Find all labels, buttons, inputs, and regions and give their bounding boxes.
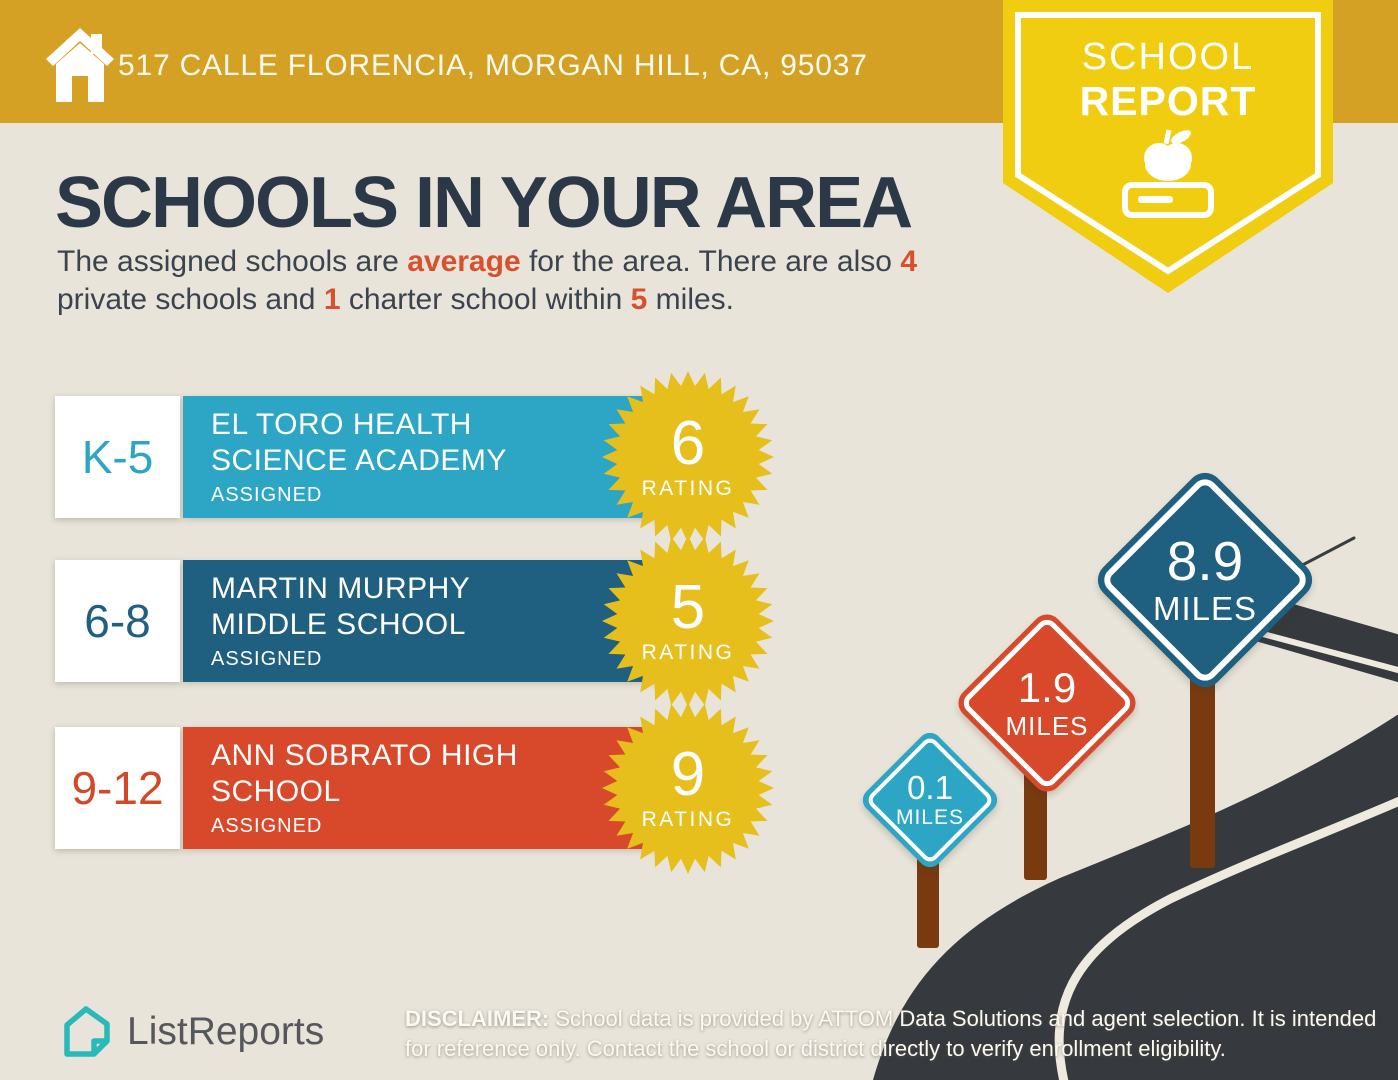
ribbon-title-school: SCHOOL [1003, 36, 1333, 79]
ribbon-title-report: REPORT [1003, 78, 1333, 125]
intro-accent-private-count: 4 [900, 245, 917, 278]
rating-label: RATING [642, 641, 735, 665]
intro-text: charter school within [341, 283, 631, 316]
assigned-label: ASSIGNED [211, 815, 663, 838]
disclaimer-line2: for reference only. Contact the school o… [405, 1036, 1226, 1061]
rating-value: 9 [671, 745, 705, 805]
intro-accent-average: average [407, 245, 520, 278]
school-name-line1: ANN SOBRATO HIGH [211, 738, 663, 774]
listreports-house-icon [60, 1004, 114, 1060]
rating-value: 6 [671, 414, 705, 474]
school-name-line2: MIDDLE SCHOOL [211, 607, 663, 643]
distance-unit: MILES [1005, 711, 1088, 742]
school-row-middle: 6-8 MARTIN MURPHY MIDDLE SCHOOL ASSIGNED… [55, 560, 795, 682]
rating-label: RATING [642, 477, 735, 501]
intro-text: private schools and [57, 283, 324, 316]
grade-range-badge: 9-12 [55, 727, 180, 849]
intro-paragraph: The assigned schools are average for the… [57, 243, 917, 319]
school-bar: ANN SOBRATO HIGH SCHOOL ASSIGNED [183, 727, 663, 849]
property-address: 517 CALLE FLORENCIA, MORGAN HILL, CA, 95… [118, 49, 868, 83]
intro-text: for the area. There are also [521, 245, 901, 278]
intro-text: The assigned schools are [57, 245, 407, 278]
home-icon [44, 26, 116, 104]
school-row-elementary: K-5 EL TORO HEALTH SCIENCE ACADEMY ASSIG… [55, 396, 795, 518]
school-row-high: 9-12 ANN SOBRATO HIGH SCHOOL ASSIGNED 9 … [55, 727, 795, 849]
page-title: SCHOOLS IN YOUR AREA [55, 162, 911, 244]
intro-accent-charter-count: 1 [324, 283, 341, 316]
school-bar: MARTIN MURPHY MIDDLE SCHOOL ASSIGNED [183, 560, 663, 682]
school-bar: EL TORO HEALTH SCIENCE ACADEMY ASSIGNED [183, 396, 663, 518]
school-name-line2: SCHOOL [211, 774, 663, 810]
grade-range: 9-12 [71, 761, 163, 815]
distance-sign-8-9-miles: 8.9 MILES [1090, 465, 1319, 694]
rating-starburst: 5 RATING [602, 535, 774, 707]
grade-range-badge: 6-8 [55, 560, 180, 682]
distance-value: 1.9 [1018, 665, 1076, 711]
school-name-line1: MARTIN MURPHY [211, 571, 663, 607]
distance-unit: MILES [1153, 590, 1257, 628]
apple-on-book-icon [1120, 126, 1216, 222]
rating-label: RATING [642, 808, 735, 832]
intro-accent-radius: 5 [631, 283, 648, 316]
rating-starburst: 6 RATING [602, 371, 774, 543]
school-report-ribbon: SCHOOL REPORT [1003, 0, 1333, 300]
grade-range: 6-8 [84, 594, 150, 648]
rating-value: 5 [671, 578, 705, 638]
disclaimer-label: DISCLAIMER: [405, 1006, 549, 1031]
assigned-label: ASSIGNED [211, 648, 663, 671]
distance-value: 0.1 [907, 770, 953, 806]
assigned-label: ASSIGNED [211, 484, 663, 507]
rating-starburst: 9 RATING [602, 702, 774, 874]
school-report-infographic: 0.1 MILES 1.9 MILES 8.9 MILES 517 CALLE … [0, 0, 1398, 1080]
distance-value: 8.9 [1167, 532, 1243, 590]
distance-unit: MILES [896, 806, 964, 830]
school-name-line2: SCIENCE ACADEMY [211, 443, 663, 479]
disclaimer-line1: School data is provided by ATTOM Data So… [549, 1006, 1376, 1031]
school-name-line1: EL TORO HEALTH [211, 407, 663, 443]
grade-range: K-5 [82, 430, 154, 484]
distance-sign-1-9-miles: 1.9 MILES [952, 608, 1142, 798]
intro-text: miles. [647, 283, 734, 316]
grade-range-badge: K-5 [55, 396, 180, 518]
disclaimer-text: DISCLAIMER: School data is provided by A… [405, 1004, 1398, 1064]
listreports-logo: ListReports [60, 1004, 324, 1060]
brand-name: ListReports [127, 1010, 324, 1054]
